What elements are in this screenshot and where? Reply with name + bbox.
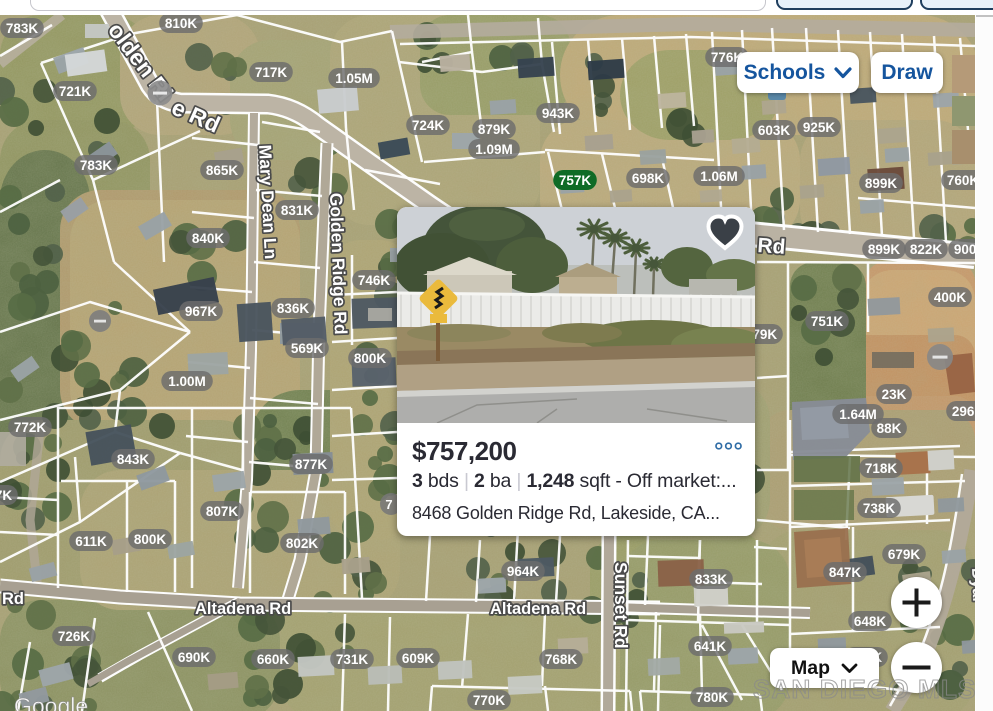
svg-text:609K: 609K bbox=[402, 651, 435, 666]
svg-text:698K: 698K bbox=[632, 171, 665, 186]
svg-text:738K: 738K bbox=[863, 501, 896, 516]
svg-text:SAN DIEGO MLS: SAN DIEGO MLS bbox=[753, 674, 977, 704]
svg-text:Sunset Rd: Sunset Rd bbox=[611, 562, 631, 649]
svg-text:757K: 757K bbox=[0, 488, 12, 503]
svg-text:Rd: Rd bbox=[2, 590, 24, 608]
svg-text:807K: 807K bbox=[206, 504, 239, 519]
svg-text:836K: 836K bbox=[277, 301, 310, 316]
svg-text:964K: 964K bbox=[507, 564, 540, 579]
svg-text:88K: 88K bbox=[877, 421, 902, 436]
svg-text:967K: 967K bbox=[185, 304, 218, 319]
svg-text:569K: 569K bbox=[291, 341, 324, 356]
svg-text:925K: 925K bbox=[803, 120, 836, 135]
svg-text:Rd: Rd bbox=[757, 234, 787, 259]
svg-text:1.64M: 1.64M bbox=[839, 407, 877, 422]
svg-text:611K: 611K bbox=[75, 534, 107, 549]
svg-text:1.06M: 1.06M bbox=[700, 169, 738, 184]
svg-text:783K: 783K bbox=[80, 158, 113, 173]
svg-text:Altadena Rd: Altadena Rd bbox=[195, 600, 291, 618]
svg-text:400K: 400K bbox=[934, 290, 967, 305]
svg-text:718K: 718K bbox=[865, 461, 898, 476]
svg-text:800K: 800K bbox=[354, 351, 387, 366]
svg-text:Google: Google bbox=[14, 696, 88, 711]
svg-text:840K: 840K bbox=[192, 231, 225, 246]
svg-text:865K: 865K bbox=[206, 163, 239, 178]
svg-text:802K: 802K bbox=[286, 536, 319, 551]
svg-text:296K: 296K bbox=[952, 404, 975, 419]
svg-text:768K: 768K bbox=[545, 652, 578, 667]
svg-text:641K: 641K bbox=[694, 639, 727, 654]
svg-text:1.09M: 1.09M bbox=[475, 142, 513, 157]
svg-text:899K: 899K bbox=[865, 176, 898, 191]
svg-text:7: 7 bbox=[385, 497, 392, 512]
svg-text:900K: 900K bbox=[954, 242, 975, 257]
svg-text:847K: 847K bbox=[829, 565, 862, 580]
svg-text:746K: 746K bbox=[358, 273, 391, 288]
svg-text:800K: 800K bbox=[134, 532, 167, 547]
svg-text:724K: 724K bbox=[412, 118, 445, 133]
svg-text:721K: 721K bbox=[59, 84, 92, 99]
svg-text:731K: 731K bbox=[336, 652, 369, 667]
svg-text:648K: 648K bbox=[854, 614, 887, 629]
svg-text:810K: 810K bbox=[165, 16, 198, 31]
svg-text:770K: 770K bbox=[473, 693, 506, 708]
svg-text:783K: 783K bbox=[6, 21, 39, 36]
svg-text:943K: 943K bbox=[542, 106, 575, 121]
svg-text:833K: 833K bbox=[695, 572, 728, 587]
svg-text:726K: 726K bbox=[58, 629, 91, 644]
svg-text:Altadena Rd: Altadena Rd bbox=[490, 600, 586, 618]
svg-text:899K: 899K bbox=[868, 242, 901, 257]
svg-text:772K: 772K bbox=[14, 420, 47, 435]
svg-text:760K: 760K bbox=[947, 173, 975, 188]
svg-text:717K: 717K bbox=[255, 65, 288, 80]
svg-text:757K: 757K bbox=[559, 173, 592, 188]
svg-text:690K: 690K bbox=[178, 650, 211, 665]
svg-text:879K: 879K bbox=[478, 122, 511, 137]
svg-text:1.00M: 1.00M bbox=[168, 374, 206, 389]
svg-text:822K: 822K bbox=[910, 242, 943, 257]
svg-text:751K: 751K bbox=[811, 314, 844, 329]
svg-text:843K: 843K bbox=[117, 452, 150, 467]
svg-text:780K: 780K bbox=[696, 690, 729, 705]
svg-text:831K: 831K bbox=[281, 203, 314, 218]
svg-text:1.05M: 1.05M bbox=[335, 71, 373, 86]
svg-text:679K: 679K bbox=[888, 547, 921, 562]
svg-text:23K: 23K bbox=[882, 387, 907, 402]
svg-text:877K: 877K bbox=[295, 457, 328, 472]
svg-text:660K: 660K bbox=[257, 652, 290, 667]
svg-text:603K: 603K bbox=[758, 123, 791, 138]
